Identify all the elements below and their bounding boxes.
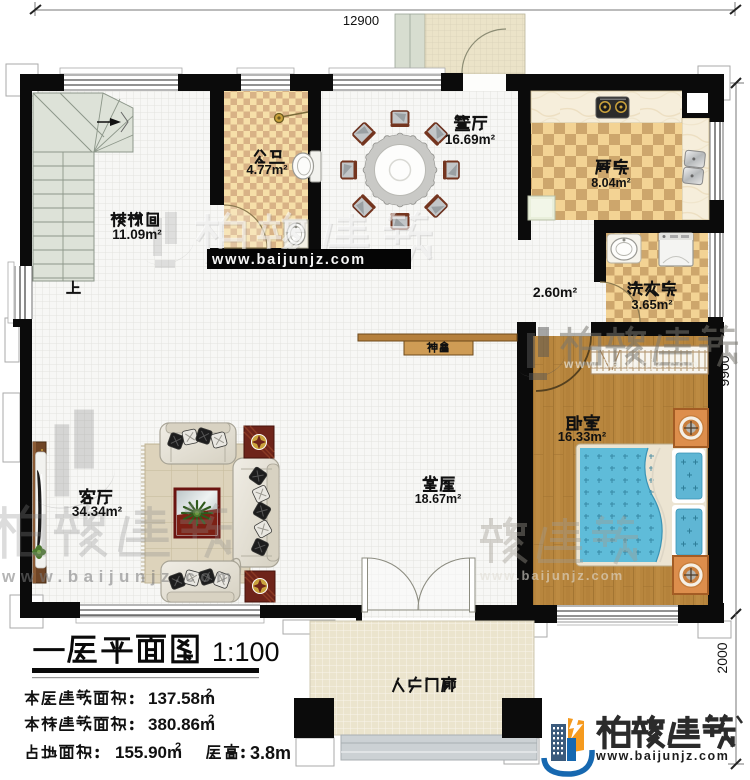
svg-text:34.34m²: 34.34m² xyxy=(72,504,123,519)
svg-text:www.baijunjz.com: www.baijunjz.com xyxy=(1,567,237,586)
svg-text:2: 2 xyxy=(208,713,214,725)
svg-text:16.69m²: 16.69m² xyxy=(445,132,496,147)
svg-text:www.baijunjz.com: www.baijunjz.com xyxy=(211,252,366,268)
svg-text:380.86m: 380.86m xyxy=(148,715,215,734)
svg-text:2000: 2000 xyxy=(714,642,730,673)
svg-text:8.04m²: 8.04m² xyxy=(591,176,631,190)
svg-text:16.33m²: 16.33m² xyxy=(558,429,607,444)
svg-text:www.baijunjz.com: www.baijunjz.com xyxy=(479,568,624,583)
svg-text:1:100: 1:100 xyxy=(212,637,280,667)
svg-text:www.baijunjz.com: www.baijunjz.com xyxy=(595,749,729,763)
svg-text:2: 2 xyxy=(175,741,181,753)
svg-text:2.60m²: 2.60m² xyxy=(533,284,578,300)
svg-text:3.8m: 3.8m xyxy=(250,743,291,763)
svg-text:4.77m²: 4.77m² xyxy=(246,162,288,177)
svg-text:3.65m²: 3.65m² xyxy=(631,297,673,312)
svg-text:155.90m: 155.90m xyxy=(115,743,182,762)
svg-text:12900: 12900 xyxy=(343,13,379,28)
svg-text:www.baijunjz.com: www.baijunjz.com xyxy=(563,357,700,371)
svg-text:11.09m²: 11.09m² xyxy=(112,227,162,242)
svg-text:2: 2 xyxy=(206,687,212,699)
svg-text:18.67m²: 18.67m² xyxy=(415,492,462,506)
